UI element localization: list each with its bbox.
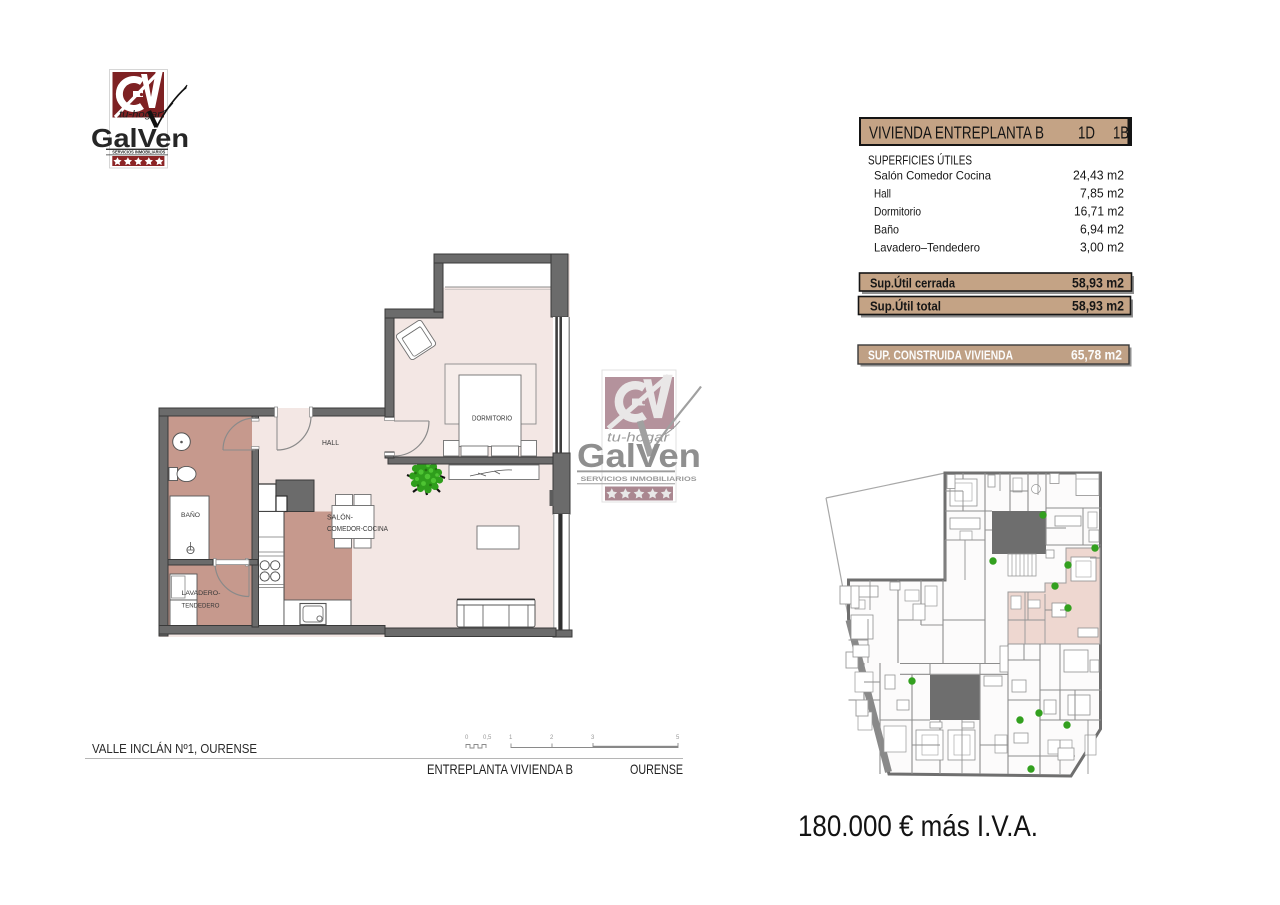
svg-text:VALLE INCLÁN Nº1, OURENSE: VALLE INCLÁN Nº1, OURENSE [92,741,257,756]
svg-text:SUP. CONSTRUIDA VIVIENDA: SUP. CONSTRUIDA VIVIENDA [868,348,1013,363]
svg-text:OURENSE: OURENSE [630,761,683,777]
svg-text:1D: 1D [1078,123,1095,143]
svg-text:COMEDOR-COCINA: COMEDOR-COCINA [327,526,388,533]
svg-text:GalVen: GalVen [577,437,701,474]
svg-text:Salón Comedor Cocina: Salón Comedor Cocina [874,169,991,183]
svg-text:VIVIENDA ENTREPLANTA B: VIVIENDA ENTREPLANTA B [869,123,1044,143]
svg-text:SERVICIOS INMOBILIARIOS: SERVICIOS INMOBILIARIOS [112,150,165,155]
svg-text:24,43 m2: 24,43 m2 [1073,169,1124,183]
svg-text:Sup.Útil total: Sup.Útil total [870,299,941,314]
svg-text:SUPERFICIES ÚTILES: SUPERFICIES ÚTILES [868,153,972,168]
svg-text:Dormitorio: Dormitorio [874,205,921,219]
svg-text:65,78 m2: 65,78 m2 [1071,348,1122,363]
svg-text:GalVen: GalVen [91,123,189,153]
svg-text:58,93 m2: 58,93 m2 [1072,299,1124,314]
svg-text:16,71 m2: 16,71 m2 [1074,205,1124,219]
svg-text:Baño: Baño [874,223,899,237]
svg-text:LAVADERO-: LAVADERO- [182,590,221,597]
svg-text:7,85 m2: 7,85 m2 [1080,187,1124,201]
svg-text:TENDEDERO: TENDEDERO [182,603,220,610]
svg-text:3,00 m2: 3,00 m2 [1080,241,1124,255]
svg-text:ENTREPLANTA VIVIENDA B: ENTREPLANTA VIVIENDA B [427,761,573,777]
svg-text:Lavadero–Tendedero: Lavadero–Tendedero [874,241,980,255]
svg-text:1B: 1B [1113,123,1129,143]
svg-text:SALÓN-: SALÓN- [327,513,354,522]
svg-text:0,5: 0,5 [483,735,492,741]
svg-text:Hall: Hall [874,187,891,201]
svg-text:180.000 € más I.V.A.: 180.000 € más I.V.A. [798,810,1038,843]
svg-text:BAÑO: BAÑO [181,510,200,519]
svg-text:SERVICIOS INMOBILIARIOS: SERVICIOS INMOBILIARIOS [581,476,697,483]
svg-text:Sup.Útil cerrada: Sup.Útil cerrada [870,276,956,291]
svg-text:DORMITORIO: DORMITORIO [472,414,512,423]
svg-text:tu-hogar: tu-hogar [119,110,162,121]
svg-text:58,93 m2: 58,93 m2 [1072,276,1124,291]
svg-text:6,94 m2: 6,94 m2 [1080,223,1124,237]
svg-text:HALL: HALL [322,438,339,447]
